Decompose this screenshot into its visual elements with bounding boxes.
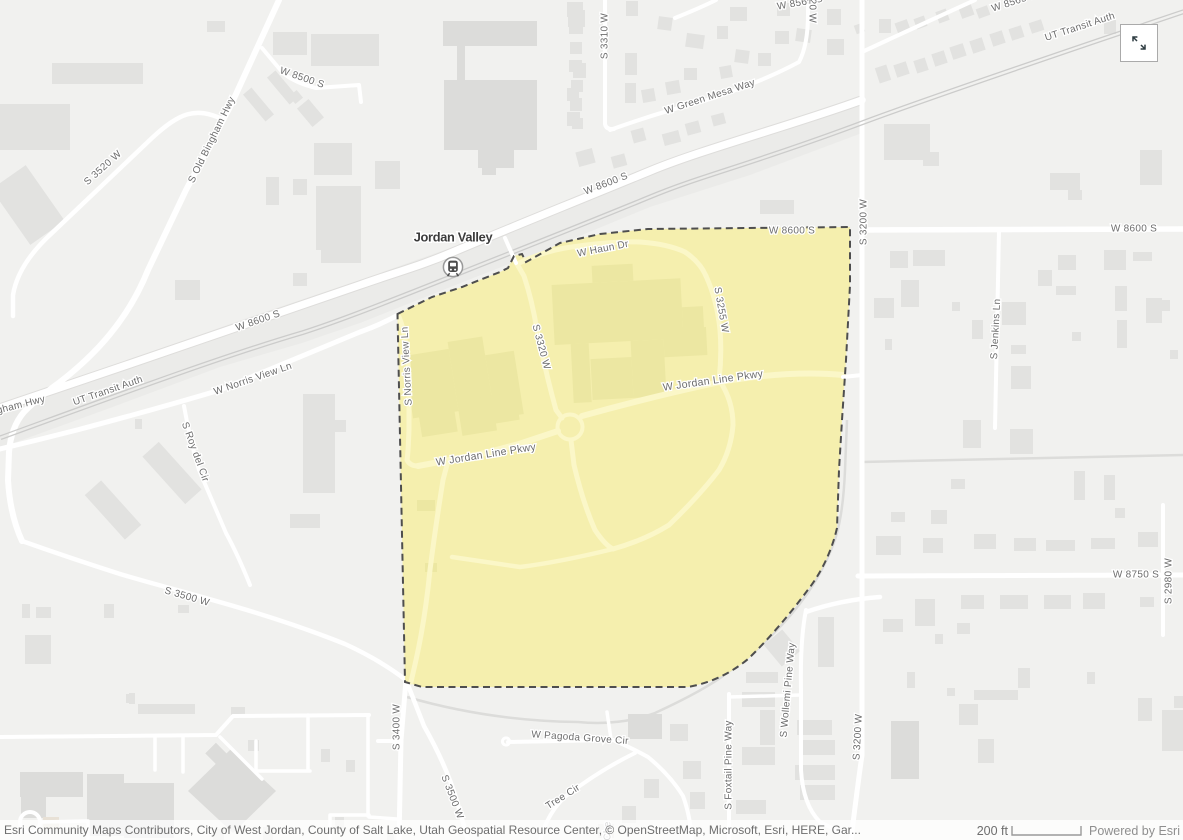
svg-text:W 8600 S: W 8600 S [769, 226, 815, 237]
svg-text:Jordan Valley: Jordan Valley [414, 229, 494, 244]
svg-text:S 2980 W: S 2980 W [1164, 558, 1175, 605]
svg-text:S 3400 W: S 3400 W [392, 704, 403, 751]
svg-text:S 3310 W: S 3310 W [600, 13, 611, 60]
svg-text:S 3220 W: S 3220 W [806, 0, 817, 23]
svg-text:W 8750 S: W 8750 S [1113, 570, 1159, 581]
svg-text:S 3200 W: S 3200 W [859, 199, 870, 246]
svg-text:S Foxtail Pine Way: S Foxtail Pine Way [724, 720, 735, 810]
svg-text:W 8600 S: W 8600 S [1111, 224, 1157, 235]
